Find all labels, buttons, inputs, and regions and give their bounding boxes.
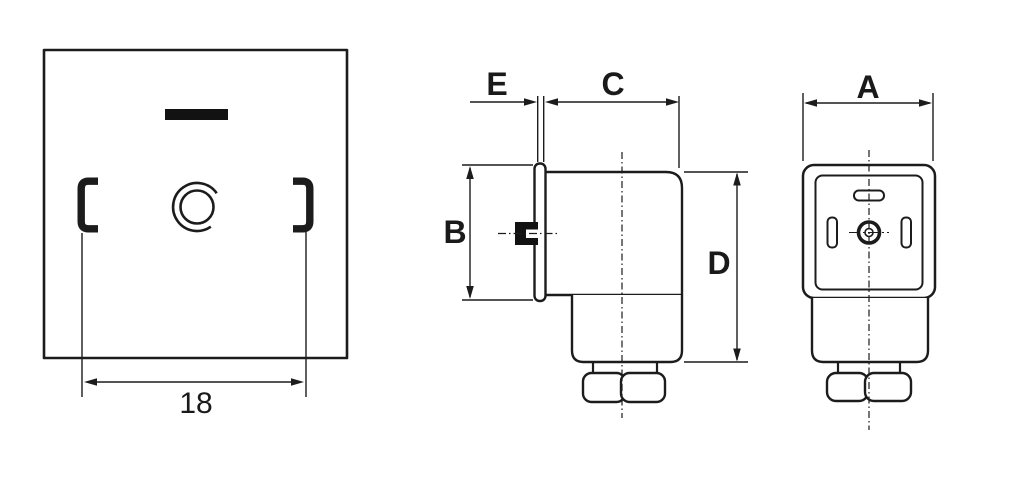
dim-label-c: C: [601, 68, 624, 100]
hex-nut-facet: [865, 373, 911, 401]
arrowhead: [466, 166, 474, 179]
connector-body-side: [545, 172, 682, 295]
arrowhead: [804, 99, 817, 107]
terminal-slot-bar: [165, 109, 228, 120]
coil-body-outline: [44, 50, 347, 358]
arrowhead: [84, 378, 97, 386]
arrowhead: [291, 378, 304, 386]
arrowhead: [466, 286, 474, 299]
technical-drawing-page: 18 E C B D A: [0, 0, 1024, 485]
face-view: [803, 93, 935, 430]
hex-nut-facet: [621, 373, 665, 402]
arrowhead: [524, 98, 537, 106]
dim-label-a: A: [856, 71, 879, 103]
arrowhead: [666, 98, 679, 106]
hex-nut-facet: [827, 373, 868, 401]
dim-e-c-lines: [470, 96, 679, 168]
dim-label-d: D: [707, 247, 730, 279]
arrowhead: [733, 349, 741, 362]
arrowhead: [733, 173, 741, 186]
cable-neck-face: [812, 298, 928, 362]
right-contact-slot: [902, 218, 912, 248]
front-view: [44, 50, 347, 397]
side-view: [462, 96, 748, 418]
left-contact-slot: [828, 218, 838, 248]
dim-label-18: 18: [179, 389, 212, 419]
arrowhead: [919, 99, 932, 107]
cable-neck-side: [572, 295, 682, 362]
arrowhead: [545, 98, 558, 106]
dim-label-b: B: [443, 216, 466, 248]
hex-nut-facet: [583, 373, 625, 402]
dim-label-e: E: [486, 68, 507, 100]
